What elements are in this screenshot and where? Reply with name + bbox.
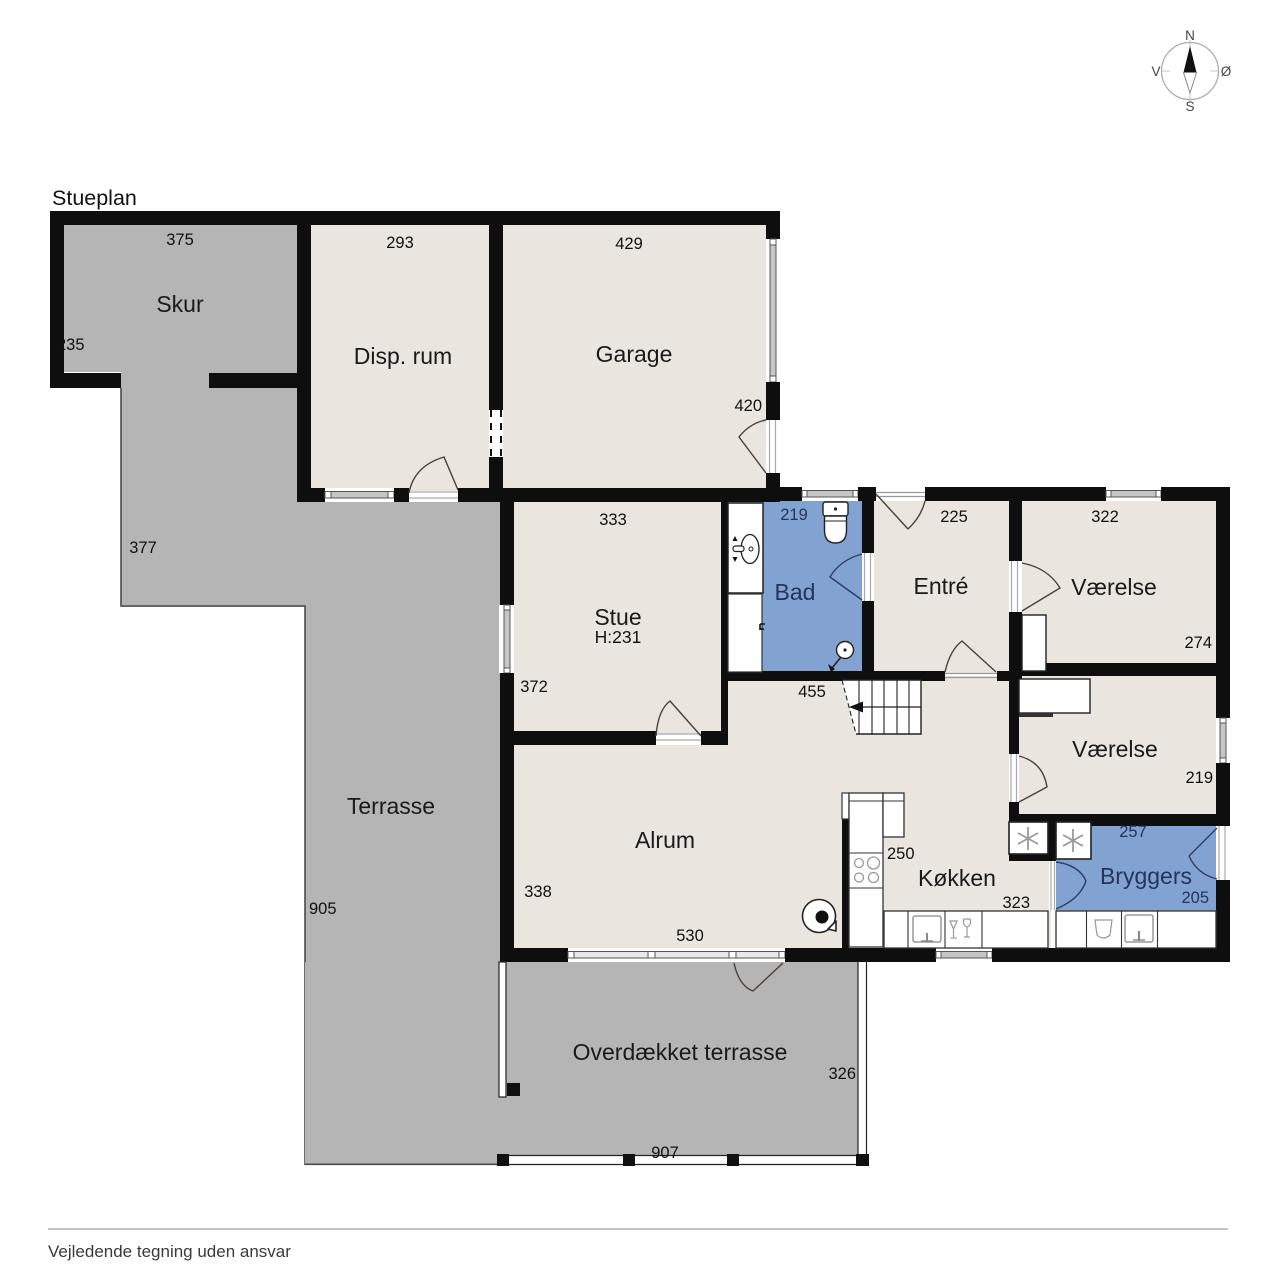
svg-text:420: 420 [734, 397, 762, 415]
svg-text:H:231: H:231 [595, 627, 642, 647]
svg-text:333: 333 [599, 511, 627, 529]
svg-text:Terrasse: Terrasse [347, 793, 435, 819]
svg-text:372: 372 [520, 678, 548, 696]
svg-text:338: 338 [524, 883, 552, 901]
svg-text:225: 225 [940, 508, 968, 526]
svg-text:Ø: Ø [1221, 64, 1232, 79]
svg-text:Vejledende tegning uden ansvar: Vejledende tegning uden ansvar [48, 1242, 291, 1261]
svg-text:Bad: Bad [775, 579, 816, 605]
svg-text:322: 322 [1091, 508, 1119, 526]
svg-text:Bryggers: Bryggers [1100, 863, 1192, 889]
svg-text:Værelse: Værelse [1071, 574, 1157, 600]
svg-text:257: 257 [1119, 823, 1147, 841]
svg-text:326: 326 [828, 1065, 856, 1083]
svg-text:Disp. rum: Disp. rum [354, 343, 452, 369]
svg-text:Værelse: Værelse [1072, 736, 1158, 762]
svg-text:219: 219 [780, 506, 808, 524]
svg-text:S: S [1185, 99, 1194, 114]
svg-text:375: 375 [166, 231, 194, 249]
svg-text:205: 205 [1181, 889, 1209, 907]
svg-text:Køkken: Køkken [918, 865, 996, 891]
svg-text:907: 907 [651, 1144, 679, 1162]
svg-text:Skur: Skur [156, 291, 204, 317]
svg-text:Overdækket terrasse: Overdækket terrasse [573, 1039, 788, 1065]
svg-text:N: N [1185, 28, 1195, 43]
svg-text:455: 455 [798, 683, 826, 701]
svg-text:377: 377 [129, 539, 157, 557]
svg-text:219: 219 [1185, 769, 1213, 787]
svg-text:235: 235 [57, 336, 85, 354]
svg-text:293: 293 [386, 234, 414, 252]
svg-text:905: 905 [309, 900, 337, 918]
svg-text:323: 323 [1002, 894, 1030, 912]
svg-text:250: 250 [887, 845, 915, 863]
svg-text:530: 530 [676, 927, 704, 945]
svg-text:V: V [1151, 64, 1160, 79]
svg-text:Alrum: Alrum [635, 827, 695, 853]
svg-text:Stueplan: Stueplan [52, 186, 137, 210]
svg-text:274: 274 [1184, 634, 1212, 652]
svg-text:429: 429 [615, 235, 643, 253]
svg-text:Entré: Entré [914, 573, 969, 599]
svg-text:Garage: Garage [596, 341, 673, 367]
